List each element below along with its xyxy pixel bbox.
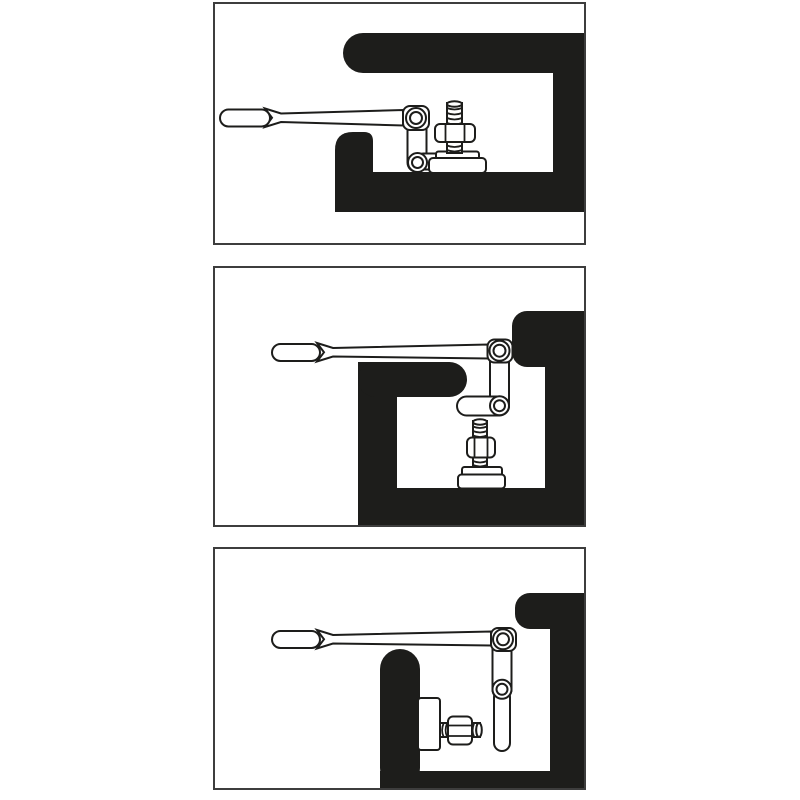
panel-2-illustration xyxy=(215,268,584,525)
head-pivot-hole xyxy=(497,633,509,645)
workpiece-hump xyxy=(335,132,373,180)
workpiece-recess xyxy=(358,311,584,525)
bolt-nut xyxy=(467,438,495,458)
bolt-stud-end xyxy=(476,723,482,737)
head-pivot-hole xyxy=(410,112,422,124)
bolt-mount-block xyxy=(418,698,440,750)
wrench-grip xyxy=(272,344,320,361)
head-pivot-hole xyxy=(494,345,506,357)
bolt-stud-top xyxy=(473,419,487,425)
bolt-assembly xyxy=(418,698,482,750)
bolt-assembly xyxy=(429,101,486,173)
wrench-grip xyxy=(220,110,270,127)
wrench-shaft xyxy=(265,109,403,128)
bolt-assembly xyxy=(458,419,505,488)
wrench-shaft xyxy=(317,343,488,362)
instruction-diagram-page xyxy=(0,0,800,800)
bolt-base-body xyxy=(429,158,486,173)
bolt-nut xyxy=(435,124,475,142)
panel-step-1 xyxy=(213,2,586,245)
lower-pivot-hole xyxy=(494,400,505,411)
wrench-shaft xyxy=(317,630,491,649)
bolt-nut xyxy=(448,717,472,745)
panel-3-illustration xyxy=(215,549,584,788)
panel-step-3 xyxy=(213,547,586,790)
lower-pivot-hole xyxy=(497,684,508,695)
lower-pivot-hole xyxy=(412,157,423,168)
panel-step-2 xyxy=(213,266,586,527)
workpiece-recess xyxy=(380,593,584,788)
bolt-stud-top xyxy=(447,101,462,107)
wrench-grip xyxy=(272,631,320,648)
bolt-base-body xyxy=(458,475,505,489)
panel-1-illustration xyxy=(215,4,584,243)
